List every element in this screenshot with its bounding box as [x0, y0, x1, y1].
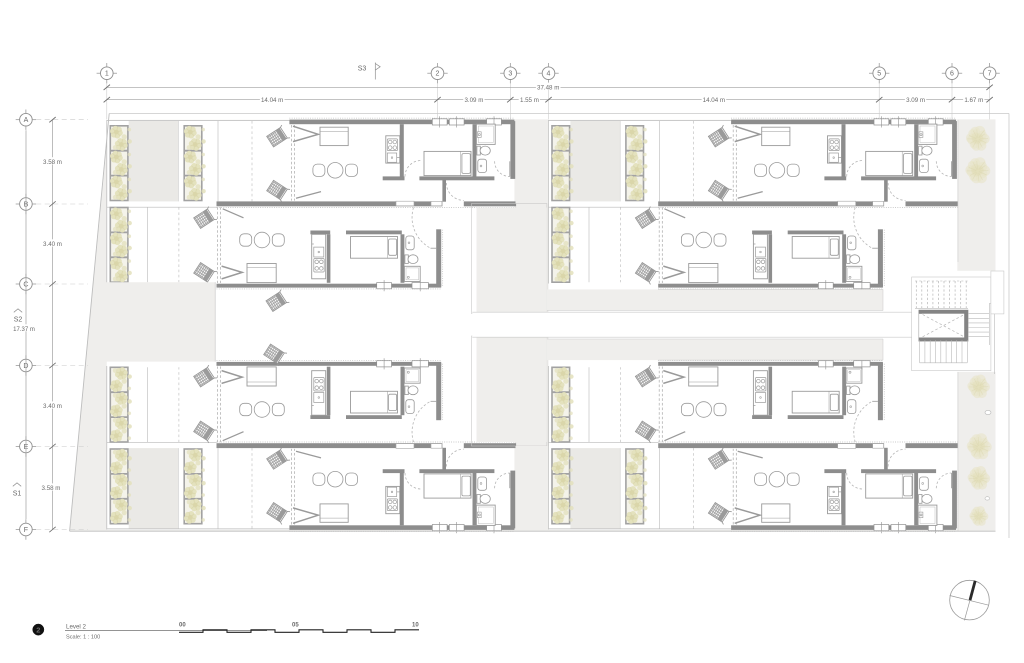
svg-text:Scale: 1 : 100: Scale: 1 : 100 [66, 635, 100, 641]
svg-text:10: 10 [412, 622, 419, 628]
svg-text:1: 1 [105, 71, 109, 78]
svg-text:14.04 m: 14.04 m [261, 97, 283, 104]
svg-text:S2: S2 [14, 317, 23, 324]
svg-text:14.04 m: 14.04 m [703, 97, 725, 104]
svg-text:3.58 m: 3.58 m [42, 485, 61, 492]
svg-text:37.48 m: 37.48 m [537, 85, 559, 92]
svg-text:1.67 m: 1.67 m [964, 97, 983, 104]
svg-text:2: 2 [436, 71, 440, 78]
svg-text:S1: S1 [13, 491, 22, 498]
svg-text:3.58 m: 3.58 m [43, 159, 62, 166]
svg-text:6: 6 [950, 71, 954, 78]
svg-text:3.09 m: 3.09 m [906, 97, 925, 104]
svg-text:S3: S3 [358, 66, 367, 73]
svg-text:3.40 m: 3.40 m [43, 241, 62, 248]
svg-text:5: 5 [877, 71, 881, 78]
svg-text:1.55 m: 1.55 m [520, 97, 539, 104]
svg-text:17.37 m: 17.37 m [13, 327, 35, 333]
svg-text:3: 3 [508, 71, 512, 78]
svg-text:05: 05 [292, 622, 299, 628]
svg-text:7: 7 [988, 71, 992, 78]
svg-text:Level 2: Level 2 [66, 623, 87, 630]
svg-text:2: 2 [36, 625, 40, 634]
svg-text:F: F [24, 527, 28, 534]
svg-text:4: 4 [547, 71, 551, 78]
svg-text:3.09 m: 3.09 m [464, 97, 483, 104]
svg-text:00: 00 [179, 622, 186, 628]
svg-text:A: A [24, 117, 29, 124]
svg-text:3.40 m: 3.40 m [43, 403, 62, 410]
